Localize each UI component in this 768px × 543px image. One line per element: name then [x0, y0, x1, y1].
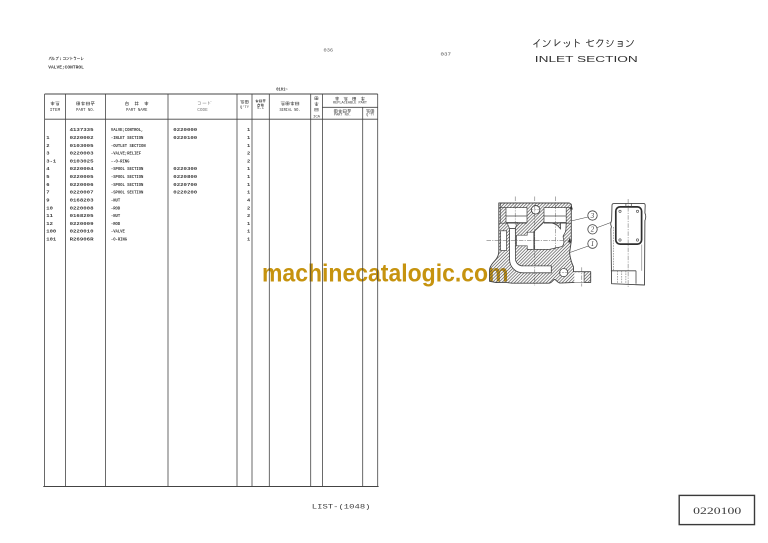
svg-text:1: 1	[247, 166, 250, 172]
svg-text:-SPOOL SECTION: -SPOOL SECTION	[111, 166, 144, 172]
svg-text:12: 12	[46, 221, 53, 227]
svg-text:PART NAME: PART NAME	[126, 109, 148, 113]
svg-text:machinecatalogic.com: machinecatalogic.com	[262, 259, 509, 287]
svg-text:0103025: 0103025	[70, 158, 94, 164]
svg-text:1: 1	[591, 241, 594, 248]
svg-text:ICA: ICA	[313, 116, 321, 120]
svg-text:-OUTLET SECTION: -OUTLET SECTION	[111, 143, 146, 149]
svg-text:--O-RING: --O-RING	[111, 158, 130, 164]
svg-text:1: 1	[247, 135, 250, 141]
svg-text:-ROD: -ROD	[111, 221, 120, 227]
svg-text:1: 1	[247, 174, 250, 180]
svg-text:3: 3	[590, 213, 595, 220]
svg-text:6: 6	[46, 182, 49, 188]
svg-text:-INLET SECTION: -INLET SECTION	[111, 135, 144, 141]
svg-text:037: 037	[441, 52, 452, 58]
svg-text:2: 2	[247, 213, 250, 219]
svg-text:S-C: S-C	[257, 107, 265, 111]
svg-text:036: 036	[324, 49, 334, 54]
svg-text:0220200: 0220200	[173, 190, 197, 196]
svg-text:-SPOOL SECTION: -SPOOL SECTION	[111, 174, 144, 180]
svg-text:2: 2	[591, 227, 595, 234]
svg-text:1: 1	[247, 221, 250, 227]
svg-text:1: 1	[247, 143, 250, 149]
svg-text:0220008: 0220008	[70, 205, 94, 211]
svg-text:2: 2	[247, 205, 250, 211]
svg-text:VALVE;CONTROL: VALVE;CONTROL	[48, 64, 84, 70]
svg-text:0220003: 0220003	[70, 151, 94, 157]
svg-text:0220300: 0220300	[173, 166, 197, 172]
svg-text:1: 1	[247, 190, 250, 196]
svg-text:0103005: 0103005	[70, 143, 94, 149]
svg-text:INLET SECTION: INLET SECTION	[535, 55, 638, 64]
svg-text:9: 9	[46, 197, 49, 203]
svg-text:0220000: 0220000	[173, 127, 197, 133]
svg-text:5: 5	[46, 174, 49, 180]
svg-text:R26906R: R26906R	[70, 236, 94, 242]
svg-text:0220100: 0220100	[693, 507, 741, 517]
svg-text:1: 1	[247, 229, 250, 235]
svg-text:4: 4	[46, 166, 49, 172]
svg-text:-SPOOL SECTION: -SPOOL SECTION	[111, 190, 144, 196]
svg-text:-NUT: -NUT	[111, 197, 120, 203]
svg-text:0168203: 0168203	[70, 197, 94, 203]
svg-text:VALVE;CONTROL,: VALVE;CONTROL,	[111, 127, 143, 133]
svg-text:0220002: 0220002	[70, 135, 94, 141]
svg-text:REPLACEABLE PART: REPLACEABLE PART	[333, 102, 368, 106]
svg-text:7: 7	[46, 190, 49, 196]
svg-text:101: 101	[46, 236, 56, 242]
svg-text:4137335: 4137335	[70, 127, 94, 133]
svg-text:-VALVE;RELIEF: -VALVE;RELIEF	[111, 151, 141, 157]
svg-text:1: 1	[247, 182, 250, 188]
svg-text:10: 10	[46, 205, 53, 211]
svg-text:3-1: 3-1	[46, 158, 56, 164]
svg-text:2: 2	[247, 158, 250, 164]
svg-text:SERIAL NO.: SERIAL NO.	[280, 109, 301, 113]
svg-text:100: 100	[46, 229, 56, 235]
svg-text:-ROD: -ROD	[111, 205, 120, 211]
svg-text:2: 2	[46, 143, 49, 149]
svg-text:0220800: 0220800	[173, 174, 197, 180]
svg-text:0220100: 0220100	[173, 135, 197, 141]
svg-text:0220006: 0220006	[70, 182, 94, 188]
svg-text:0220010: 0220010	[70, 229, 94, 235]
svg-text:ITEM: ITEM	[50, 109, 61, 113]
svg-text:Q'TY: Q'TY	[240, 105, 250, 110]
svg-text:0220009: 0220009	[70, 221, 94, 227]
svg-text:-O-RING: -O-RING	[111, 236, 127, 242]
svg-text:3: 3	[46, 151, 49, 157]
svg-text:LIST-(1048): LIST-(1048)	[312, 503, 371, 510]
svg-text:-NUT: -NUT	[111, 213, 120, 219]
svg-text:0220007: 0220007	[70, 190, 94, 196]
svg-text:1: 1	[247, 236, 250, 242]
svg-text:1: 1	[46, 135, 49, 141]
svg-text:Q'TY: Q'TY	[366, 113, 375, 118]
svg-text:CODE: CODE	[197, 109, 208, 113]
svg-text:0168205: 0168205	[70, 213, 94, 219]
svg-text:PART NO.: PART NO.	[76, 109, 95, 113]
svg-text:11: 11	[46, 213, 53, 219]
svg-text:0220005: 0220005	[70, 174, 94, 180]
svg-text:-SPOOL SECTION: -SPOOL SECTION	[111, 182, 144, 188]
svg-text:0220700: 0220700	[173, 182, 197, 188]
svg-text:0220004: 0220004	[70, 166, 94, 172]
svg-text:1: 1	[247, 127, 250, 133]
svg-text:0101~: 0101~	[276, 87, 288, 93]
svg-text:2: 2	[247, 151, 250, 157]
svg-text:PART NO.: PART NO.	[334, 114, 351, 118]
svg-text:-VALVE: -VALVE	[111, 229, 125, 235]
svg-text:4: 4	[247, 197, 250, 203]
